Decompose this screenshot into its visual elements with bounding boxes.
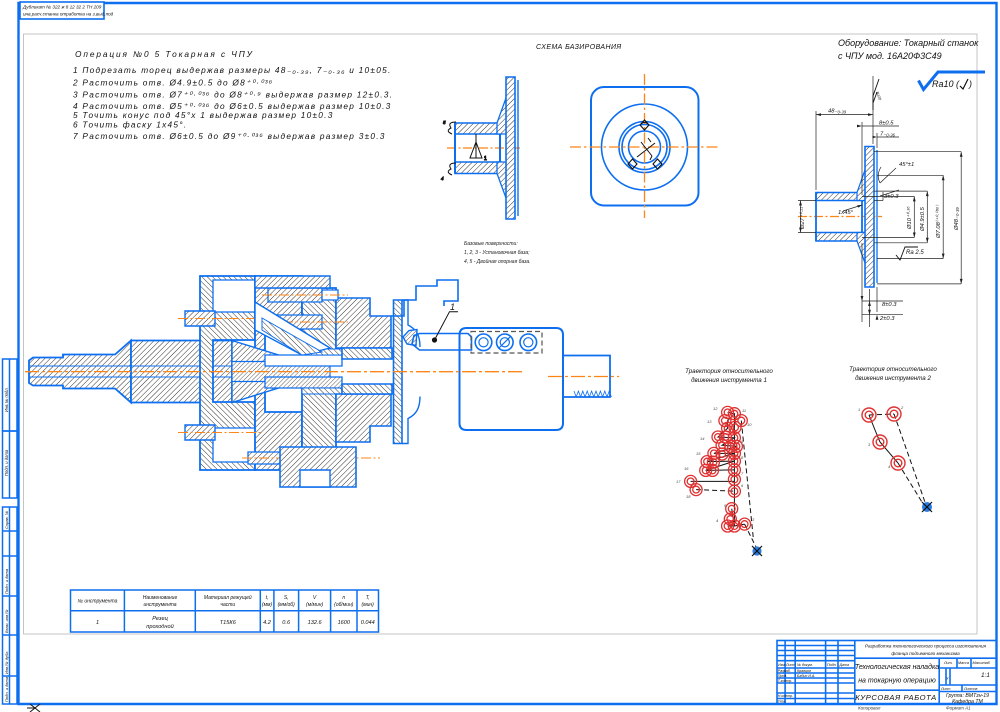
svg-text:Разраб.: Разраб.: [778, 669, 791, 673]
svg-text:Траектория относительного: Траектория относительного: [685, 368, 773, 375]
svg-text:Пров.: Пров.: [778, 674, 787, 678]
svg-text:1: 1: [450, 302, 455, 312]
svg-text:Кафедра ТМ: Кафедра ТМ: [952, 699, 983, 705]
svg-text:Масштаб: Масштаб: [973, 661, 991, 665]
svg-text:Подп. и дата: Подп. и дата: [4, 676, 9, 702]
svg-text:на токарную операцию: на токарную операцию: [858, 678, 936, 685]
svg-text:части: части: [220, 602, 235, 608]
svg-text:5 Точить конус под 45°х 1 выд: 5 Точить конус под 45°х 1 выдержав разме…: [73, 110, 334, 120]
svg-text:12: 12: [713, 406, 718, 411]
svg-text:инв.расч.станка отработка на з: инв.расч.станка отработка на з.выд.под: [23, 12, 114, 17]
svg-text:2 Расточить отв. Ø4.9±0.5 до: 2 Расточить отв. Ø4.9±0.5 до Ø8⁺⁰·⁰³⁶: [72, 78, 273, 88]
svg-text:Разработка технологического: Разработка технологического процесса изг…: [865, 644, 987, 649]
svg-text:Наименование: Наименование: [143, 595, 178, 601]
svg-text:10: 10: [747, 422, 752, 427]
svg-text:Лист: Лист: [785, 663, 795, 667]
svg-text:Кравцов: Кравцов: [797, 669, 811, 673]
svg-text:Ra 2.5: Ra 2.5: [906, 250, 924, 256]
svg-text:7₋₀.₃₆: 7₋₀.₃₆: [880, 132, 896, 138]
svg-text:1, 2, 3 - Установочная база;: 1, 2, 3 - Установочная база;: [464, 250, 530, 256]
svg-text:фланца подъемного механизма: фланца подъемного механизма: [891, 651, 960, 656]
svg-text:Масса: Масса: [958, 661, 969, 665]
svg-text:Дата: Дата: [839, 663, 849, 667]
svg-text:Материал режущей: Материал режущей: [204, 594, 252, 601]
svg-text:Взам. инв.№: Взам. инв.№: [4, 609, 9, 633]
svg-text:Дубликат № 322 ж 8 12 32 2 ТН: Дубликат № 322 ж 8 12 32 2 ТН 209: [22, 5, 102, 10]
svg-text:Резец: Резец: [152, 616, 168, 622]
svg-text:Подп. и дата: Подп. и дата: [4, 449, 9, 476]
svg-text:0.6: 0.6: [282, 620, 291, 626]
svg-text:Лит.: Лит.: [943, 661, 953, 665]
svg-text:Подп. и дата: Подп. и дата: [4, 568, 9, 594]
svg-text:(мм/об): (мм/об): [278, 602, 296, 608]
svg-text:Оборудование: Токарный станок: Оборудование: Токарный станок: [838, 38, 979, 48]
svg-text:4, 5 - Двойная опорная база.: 4, 5 - Двойная опорная база.: [464, 258, 531, 265]
svg-text:Лист: Лист: [940, 687, 951, 691]
svg-text:Инв.№ дубл.: Инв.№ дубл.: [4, 651, 9, 675]
svg-text:0.044: 0.044: [361, 620, 375, 626]
svg-text:движения инструмента 2: движения инструмента 2: [855, 375, 931, 382]
svg-text:1: 1: [858, 407, 860, 412]
svg-text:8±0.5: 8±0.5: [879, 121, 894, 127]
svg-text:(мм): (мм): [262, 602, 273, 608]
svg-text:1:1: 1:1: [981, 672, 990, 679]
svg-text:№ докум.: № докум.: [797, 663, 813, 667]
svg-text:Т.контр.: Т.контр.: [778, 679, 793, 683]
svg-text:(мин): (мин): [362, 602, 375, 608]
svg-text:Н.контр.: Н.контр.: [778, 694, 793, 698]
svg-text:СХЕМА БАЗИРОВАНИЯ: СХЕМА БАЗИРОВАНИЯ: [536, 44, 622, 51]
svg-text:1 Подрезать торец выдержав ра: 1 Подрезать торец выдержав размеры 48₋₀.…: [73, 65, 392, 75]
svg-text:18: 18: [686, 494, 691, 499]
svg-text:15: 15: [696, 451, 701, 456]
svg-text:Ø7.08⁽⁺⁰·⁰³⁶⁾: Ø7.08⁽⁺⁰·⁰³⁶⁾: [935, 205, 942, 239]
svg-text:проходной: проходной: [146, 623, 173, 630]
svg-text:КУРСОВАЯ РАБОТА: КУРСОВАЯ РАБОТА: [855, 693, 937, 702]
svg-text:Т,: Т,: [366, 595, 370, 601]
svg-text:17: 17: [676, 479, 681, 484]
svg-text:движения инструмента 1: движения инструмента 1: [691, 377, 767, 384]
svg-text:16: 16: [684, 466, 689, 471]
svg-text:8±0.3: 8±0.3: [882, 302, 897, 308]
svg-text:инструмента: инструмента: [143, 602, 176, 608]
svg-text:Ø48₋₀.₃₉: Ø48₋₀.₃₉: [954, 207, 960, 231]
svg-text:3±0.3: 3±0.3: [884, 194, 899, 200]
svg-text:Технологическая наладка: Технологическая наладка: [855, 663, 939, 671]
svg-text:Ra10 (: Ra10 (: [932, 79, 960, 89]
svg-text:45°±1: 45°±1: [899, 162, 914, 168]
svg-text:): ): [968, 79, 972, 89]
svg-text:14: 14: [700, 436, 705, 441]
svg-text:6 Точить фаску 1х45°.: 6 Точить фаску 1х45°.: [73, 120, 187, 130]
svg-text:Ø27⁺⁰·²¹: Ø27⁺⁰·²¹: [799, 207, 806, 230]
svg-text:Бабин И.А.: Бабин И.А.: [797, 674, 815, 678]
svg-text:S,: S,: [284, 595, 289, 601]
svg-text:n: n: [342, 595, 345, 601]
svg-text:7 Расточить отв. Ø6±0.5 до: 7 Расточить отв. Ø6±0.5 до Ø9⁺⁰·⁰³⁶ выде…: [73, 131, 386, 141]
svg-text:(м/мин): (м/мин): [306, 602, 323, 608]
svg-text:Базовые поверхности:: Базовые поверхности:: [464, 241, 518, 247]
svg-text:Листов: Листов: [963, 687, 978, 691]
svg-text:132.6: 132.6: [308, 620, 323, 626]
svg-text:Ø10⁺⁰·³⁶: Ø10⁺⁰·³⁶: [906, 206, 913, 230]
svg-text:Операция №0 5 Токарная с ЧПУ: Операция №0 5 Токарная с ЧПУ: [75, 49, 254, 59]
svg-text:Копировал: Копировал: [858, 706, 881, 711]
svg-text:Утв.: Утв.: [778, 699, 786, 703]
svg-text:Подп.: Подп.: [827, 663, 837, 667]
svg-text:№ инструмента: № инструмента: [78, 599, 118, 605]
svg-text:(об/мин): (об/мин): [334, 602, 354, 608]
svg-text:48₋₀.₃₉: 48₋₀.₃₉: [828, 109, 847, 115]
svg-text:с ЧПУ мод. 16А20Ф3С49: с ЧПУ мод. 16А20Ф3С49: [838, 51, 942, 61]
svg-text:3 Расточить отв. Ø7⁺⁰·⁰³⁶ до: 3 Расточить отв. Ø7⁺⁰·⁰³⁶ до Ø8⁺⁰·⁹ выде…: [73, 90, 393, 100]
svg-text:4.2: 4.2: [263, 620, 272, 626]
svg-text:Ø4.9±0.5: Ø4.9±0.5: [920, 206, 926, 232]
svg-text:Изм: Изм: [778, 663, 785, 667]
svg-text:1600: 1600: [338, 620, 351, 626]
svg-text:11: 11: [742, 408, 746, 413]
svg-text:1х45°: 1х45°: [838, 210, 854, 216]
svg-text:Инв.№ подл.: Инв.№ подл.: [4, 387, 9, 412]
svg-text:1: 1: [484, 156, 487, 162]
svg-text:t,: t,: [266, 595, 269, 601]
svg-text:Формат А1: Формат А1: [946, 706, 971, 711]
svg-text:Справ. №: Справ. №: [4, 510, 9, 529]
svg-text:13: 13: [707, 419, 712, 424]
svg-text:2±0.3: 2±0.3: [879, 316, 895, 322]
svg-text:1: 1: [96, 620, 99, 626]
svg-text:Траектория относительного: Траектория относительного: [849, 366, 937, 373]
svg-text:Т15К6: Т15К6: [220, 620, 237, 626]
